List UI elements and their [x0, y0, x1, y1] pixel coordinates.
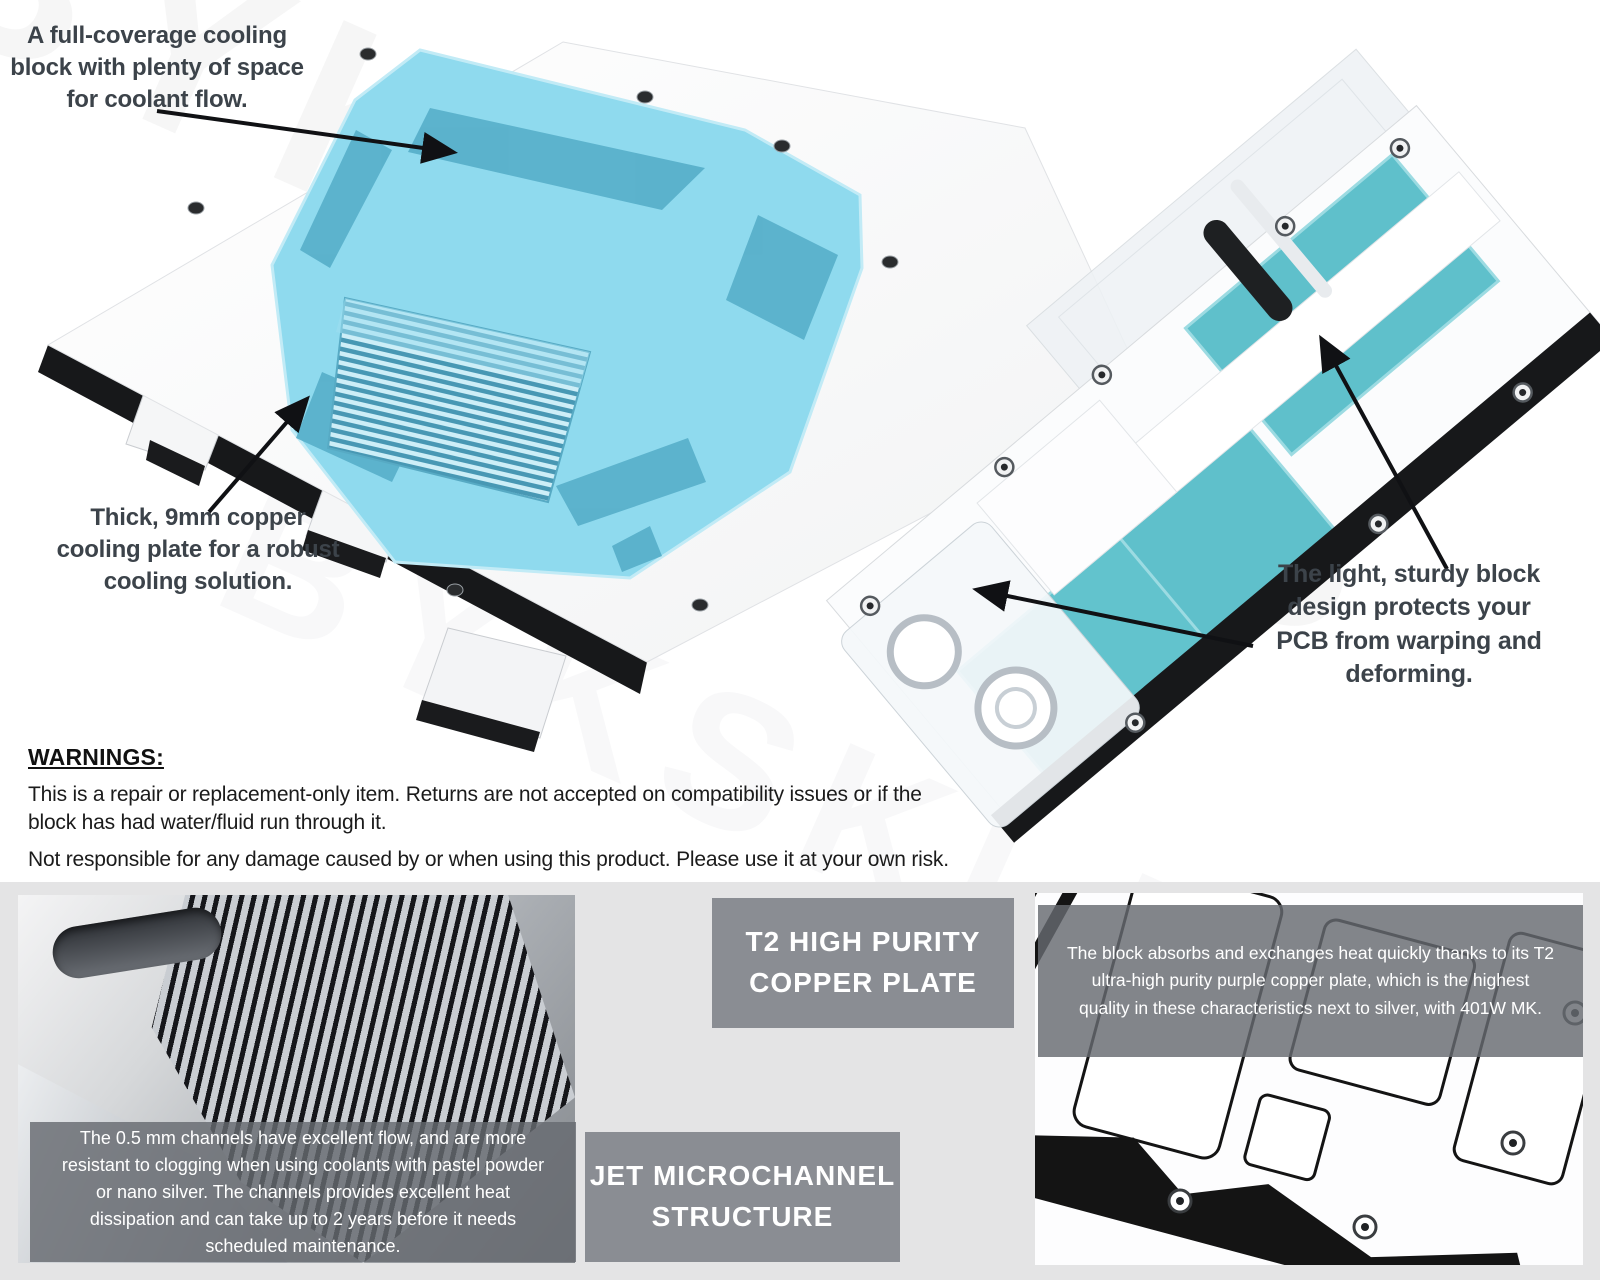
warnings-section: WARNINGS: This is a repair or replacemen…: [28, 744, 988, 883]
feature-title-t2: T2 HIGH PURITY COPPER PLATE: [712, 898, 1014, 1028]
warnings-heading: WARNINGS:: [28, 744, 988, 771]
annotation-block-design: The light, sturdy block design protects …: [1243, 558, 1575, 691]
feature-description-jet: The 0.5 mm channels have excellent flow,…: [30, 1122, 576, 1262]
annotation-coolant-flow: A full-coverage cooling block with plent…: [8, 20, 306, 116]
feature-title-jet: JET MICROCHANNEL STRUCTURE: [585, 1132, 900, 1262]
feature-description-t2: The block absorbs and exchanges heat qui…: [1038, 905, 1583, 1057]
features-band: T2 HIGH PURITY COPPER PLATE The block ab…: [0, 882, 1600, 1280]
warnings-paragraph-1: This is a repair or replacement-only ite…: [28, 781, 988, 837]
annotation-copper-plate: Thick, 9mm copper cooling plate for a ro…: [42, 502, 354, 598]
product-info-page: BYKSKI.US BYKSKI.US: [0, 0, 1600, 1280]
warnings-paragraph-2: Not responsible for any damage caused by…: [28, 846, 988, 874]
